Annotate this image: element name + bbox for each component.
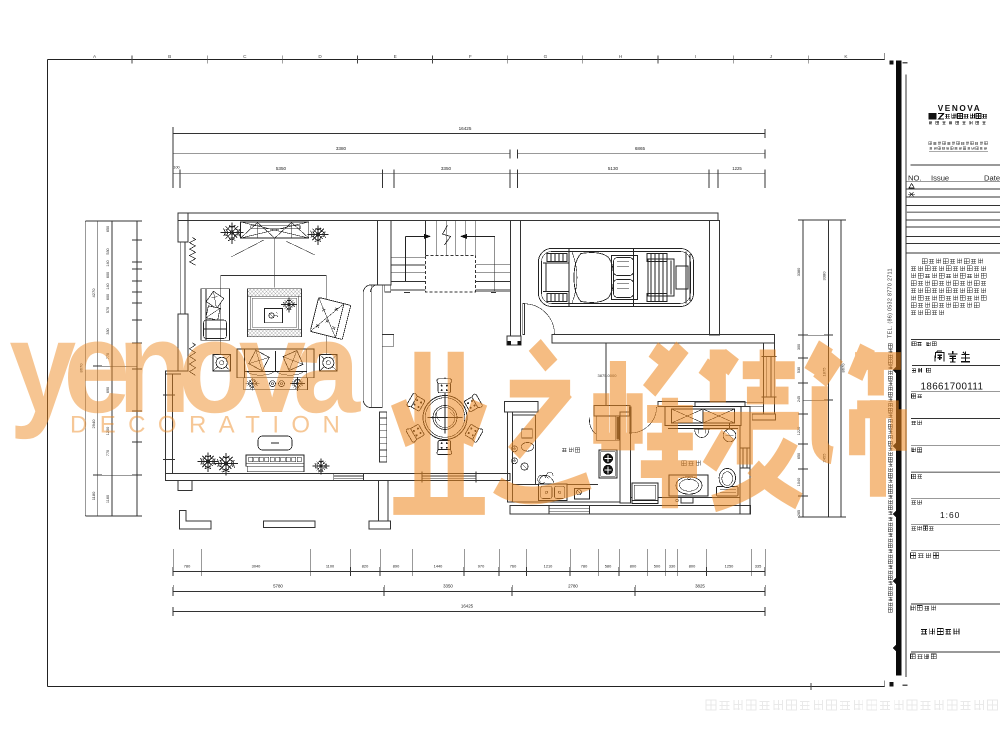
svg-text:780: 780 bbox=[581, 564, 588, 569]
svg-text:335: 335 bbox=[755, 564, 762, 569]
svg-text:580: 580 bbox=[605, 564, 612, 569]
svg-text:530: 530 bbox=[106, 248, 110, 254]
svg-text:650: 650 bbox=[106, 226, 110, 232]
svg-text:770: 770 bbox=[106, 450, 110, 456]
svg-text:1160: 1160 bbox=[106, 495, 110, 503]
svg-text:330: 330 bbox=[669, 564, 676, 569]
svg-text:3040: 3040 bbox=[252, 564, 261, 569]
svg-text:3380: 3380 bbox=[797, 268, 801, 276]
svg-text:3380: 3380 bbox=[822, 271, 827, 281]
svg-text:18661700111: 18661700111 bbox=[921, 382, 984, 393]
svg-text:3350: 3350 bbox=[443, 584, 453, 589]
svg-text:100: 100 bbox=[173, 166, 179, 170]
svg-text:K: K bbox=[844, 54, 848, 59]
svg-text:Issue: Issue bbox=[931, 174, 949, 183]
svg-text:8670: 8670 bbox=[841, 363, 846, 373]
svg-text:5130: 5130 bbox=[608, 166, 619, 171]
svg-text:Date: Date bbox=[984, 174, 1000, 183]
svg-text:140: 140 bbox=[106, 283, 110, 289]
svg-text:H: H bbox=[619, 54, 622, 59]
svg-text:TEL. (86) 0532 8770 2711: TEL. (86) 0532 8770 2711 bbox=[888, 268, 894, 338]
svg-text:5350: 5350 bbox=[276, 166, 287, 171]
svg-text:780: 780 bbox=[184, 564, 191, 569]
svg-text:140: 140 bbox=[106, 260, 110, 266]
svg-text:DECORATION: DECORATION bbox=[70, 412, 352, 439]
svg-text:970: 970 bbox=[478, 564, 485, 569]
svg-text:500: 500 bbox=[654, 564, 661, 569]
svg-text:1100: 1100 bbox=[326, 564, 335, 569]
svg-text:530: 530 bbox=[797, 367, 801, 373]
svg-text:245: 245 bbox=[797, 396, 801, 402]
svg-text:D: D bbox=[318, 54, 322, 59]
svg-text:6865: 6865 bbox=[635, 146, 646, 151]
svg-text:3825: 3825 bbox=[695, 584, 705, 589]
svg-text:3380: 3380 bbox=[336, 146, 347, 151]
svg-text:890: 890 bbox=[393, 564, 400, 569]
svg-text:265: 265 bbox=[797, 510, 801, 516]
svg-text:VENOVA: VENOVA bbox=[938, 104, 982, 113]
svg-text:16425: 16425 bbox=[459, 126, 472, 131]
svg-text:1180: 1180 bbox=[91, 491, 96, 500]
svg-text:NO.: NO. bbox=[908, 174, 922, 183]
svg-text:16425: 16425 bbox=[461, 604, 474, 609]
svg-text:G: G bbox=[544, 54, 548, 59]
svg-text:800: 800 bbox=[630, 564, 637, 569]
svg-text:A: A bbox=[93, 54, 97, 59]
svg-text:760: 760 bbox=[510, 564, 517, 569]
svg-text:5780: 5780 bbox=[273, 584, 283, 589]
svg-text:3350: 3350 bbox=[441, 166, 452, 171]
svg-text:E: E bbox=[394, 54, 397, 59]
svg-text:650: 650 bbox=[797, 453, 801, 459]
svg-text:1:60: 1:60 bbox=[940, 510, 960, 520]
svg-text:2780: 2780 bbox=[568, 584, 578, 589]
svg-text:1040: 1040 bbox=[797, 478, 801, 486]
svg-text:800: 800 bbox=[689, 564, 696, 569]
svg-text:J: J bbox=[770, 54, 772, 59]
svg-text:1210: 1210 bbox=[544, 564, 553, 569]
svg-text:B: B bbox=[168, 54, 171, 59]
svg-text:1225: 1225 bbox=[732, 166, 742, 171]
svg-text:820: 820 bbox=[362, 564, 369, 569]
svg-text:F: F bbox=[469, 54, 472, 59]
svg-text:600: 600 bbox=[106, 272, 110, 278]
svg-text:C: C bbox=[243, 54, 247, 59]
svg-text:1250: 1250 bbox=[725, 564, 734, 569]
svg-text:I: I bbox=[695, 54, 696, 59]
svg-text:1440: 1440 bbox=[434, 564, 443, 569]
svg-text:300: 300 bbox=[797, 344, 801, 350]
